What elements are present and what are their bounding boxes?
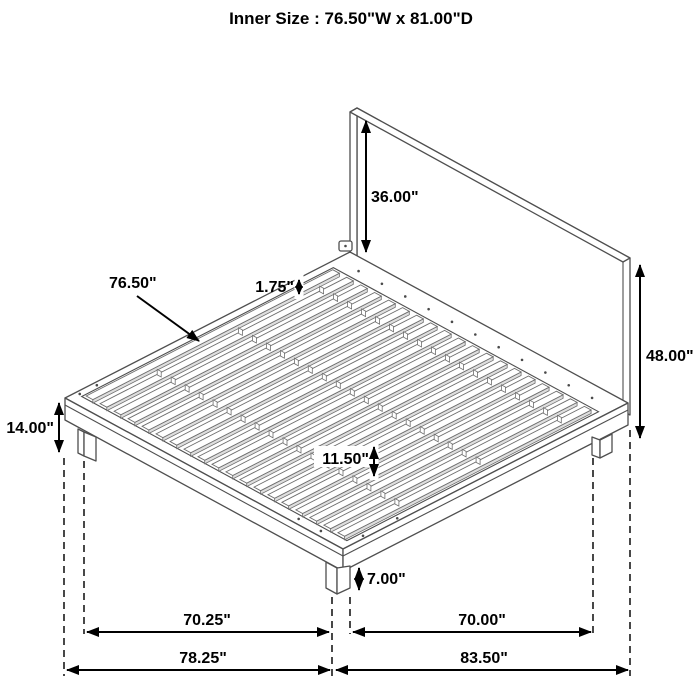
screw-dot: [427, 308, 430, 311]
dim-label-7825: 78.25": [179, 650, 227, 667]
front-leg-side: [326, 562, 337, 594]
dim-label-7025: 70.25": [183, 612, 231, 629]
screw-dot: [320, 530, 323, 533]
dim-label-36: 36.00": [371, 189, 419, 206]
dim-leader-765: [137, 296, 199, 341]
screw-dot: [396, 517, 399, 520]
dim-label-175: 1.75": [255, 279, 294, 296]
screw-dot: [404, 295, 407, 298]
bed-dimension-diagram-page: Inner Size : 76.50"W x 81.00"D: [0, 0, 700, 700]
screw-dot: [567, 384, 570, 387]
left-leg-side: [78, 429, 84, 456]
screw-dot: [297, 518, 300, 521]
screw-dot: [591, 397, 594, 400]
dim-label-7: 7.00": [367, 571, 406, 588]
screw-dot: [78, 393, 81, 396]
dim-label-7000: 70.00": [458, 612, 506, 629]
screw-dot: [521, 359, 524, 362]
screw-dot: [544, 371, 547, 374]
dim-label-14: 14.00": [6, 420, 54, 437]
screw-dot: [357, 270, 360, 273]
right-leg-side: [592, 437, 600, 458]
front-leg-front: [337, 566, 350, 594]
dim-label-765: 76.50": [109, 275, 157, 292]
screw-dot: [497, 346, 500, 349]
dim-label-8350: 83.50": [460, 650, 508, 667]
bed-dimension-diagram: Inner Size : 76.50"W x 81.00"D: [0, 0, 700, 700]
screw-dot: [451, 321, 454, 324]
dim-label-115: 11.50": [322, 451, 369, 468]
screw-dot: [96, 384, 99, 387]
diagram-title: Inner Size : 76.50"W x 81.00"D: [229, 9, 473, 28]
left-leg-front: [84, 432, 96, 461]
screw-dot: [474, 333, 477, 336]
screw-dot: [381, 282, 384, 285]
bracket-hole: [344, 245, 347, 248]
screw-dot: [362, 535, 365, 538]
dim-label-48: 48.00": [646, 348, 694, 365]
